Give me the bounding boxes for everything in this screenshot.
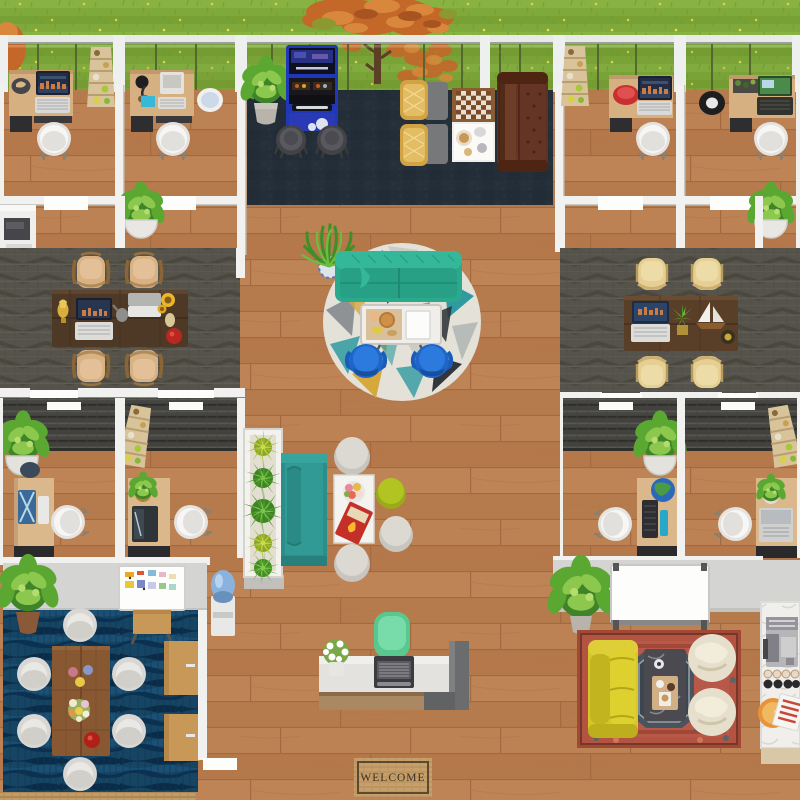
svg-text:WELCOME: WELCOME: [360, 772, 425, 784]
